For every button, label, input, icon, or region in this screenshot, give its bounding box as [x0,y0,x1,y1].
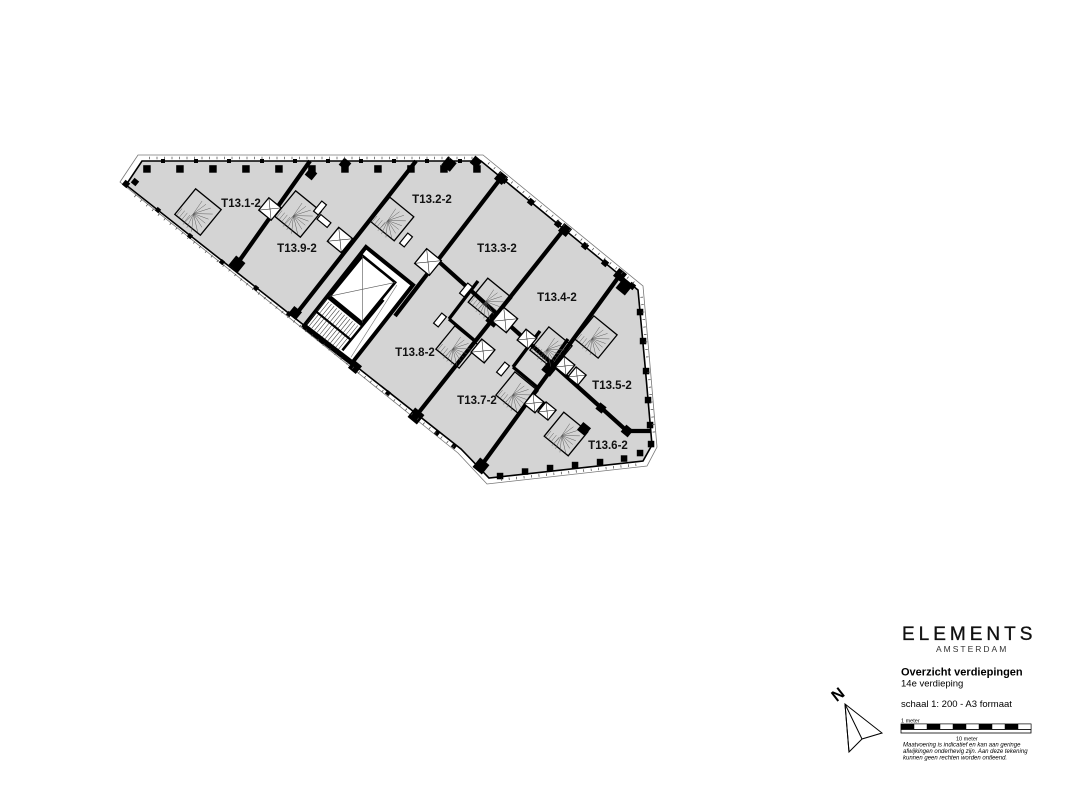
svg-text:14e verdieping: 14e verdieping [901,679,963,690]
svg-text:ELEMENTS: ELEMENTS [902,624,1036,645]
svg-text:T13.1-2: T13.1-2 [221,198,261,210]
svg-text:T13.4-2: T13.4-2 [537,292,577,304]
svg-text:Overzicht verdiepingen: Overzicht verdiepingen [901,667,1023,679]
svg-text:kunnen geen rechten worden ont: kunnen geen rechten worden ontleend. [903,756,1007,762]
svg-text:T13.3-2: T13.3-2 [477,243,517,255]
svg-text:afwijkingen onderhevig zijn. A: afwijkingen onderhevig zijn. Aan deze te… [903,749,1028,755]
svg-text:1 meter: 1 meter [901,719,920,725]
svg-text:T13.6-2: T13.6-2 [588,440,628,452]
svg-text:T13.5-2: T13.5-2 [592,380,632,392]
svg-text:T13.8-2: T13.8-2 [395,347,435,359]
svg-text:T13.2-2: T13.2-2 [412,194,452,206]
svg-text:Maatvoering is indicatief en k: Maatvoering is indicatief en kan aan ger… [903,743,1021,749]
svg-text:T13.7-2: T13.7-2 [457,395,497,407]
svg-text:schaal 1: 200 - A3 formaat: schaal 1: 200 - A3 formaat [901,699,1012,710]
svg-text:AMSTERDAM: AMSTERDAM [936,644,1008,654]
svg-text:T13.9-2: T13.9-2 [277,243,317,255]
